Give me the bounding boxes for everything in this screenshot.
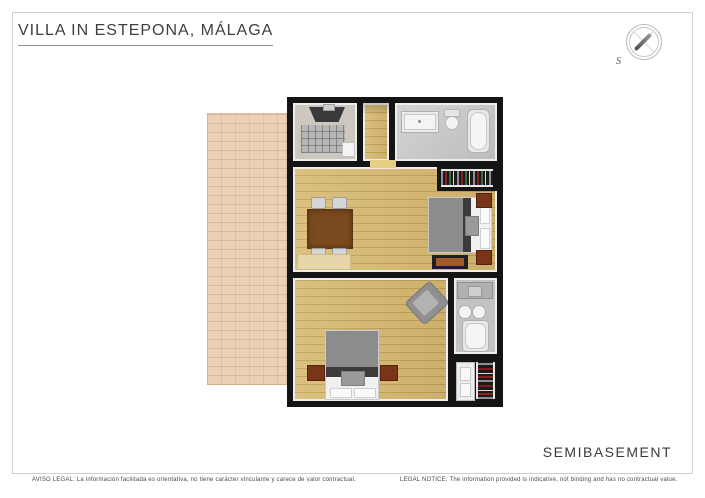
- dining-chair: [332, 197, 347, 209]
- shower-tray-icon: [401, 111, 439, 133]
- nightstand: [307, 365, 325, 381]
- nightstand: [476, 193, 492, 208]
- wardrobe-clothes: [441, 169, 493, 187]
- dining-table: [307, 209, 353, 249]
- bed-pillow: [330, 388, 352, 398]
- vanity-sink: [457, 282, 493, 299]
- cabinet-small: [342, 142, 355, 157]
- shower-drain: [418, 120, 421, 123]
- bed-blanket: [465, 216, 479, 236]
- room-utility: [293, 103, 357, 161]
- bed-duvet: [326, 331, 378, 367]
- nightstand: [476, 250, 492, 265]
- bathtub-icon: [467, 109, 490, 153]
- bathtub-inner: [470, 112, 487, 150]
- bathtub-inner: [465, 323, 486, 349]
- toilet-icon: [458, 305, 472, 319]
- floor-label: SEMIBASEMENT: [543, 444, 672, 460]
- bed-blanket: [341, 371, 365, 386]
- wardrobe-top: [437, 167, 497, 191]
- legal-notice-en: LEGAL NOTICE: The information provided i…: [400, 477, 677, 483]
- dining-chair: [311, 197, 326, 209]
- sink-basin: [468, 286, 482, 297]
- bench: [432, 255, 468, 269]
- legal-notice-es: AVISO LEGAL: La información facilitada e…: [32, 477, 356, 483]
- nightstand: [380, 365, 398, 381]
- compass-south-label: S: [616, 56, 621, 67]
- shelf-opening: [460, 367, 471, 381]
- shelf-opening: [460, 383, 471, 397]
- media-unit-top: [323, 104, 335, 111]
- bathtub-icon: [462, 320, 489, 352]
- terrace-paving: [207, 113, 287, 385]
- toilet-icon: [445, 116, 459, 130]
- bed-duvet: [429, 198, 463, 252]
- tiled-rug: [301, 125, 345, 153]
- bidet-icon: [472, 305, 486, 319]
- wardrobe-clothes: [476, 362, 495, 399]
- bed-pillow: [480, 228, 490, 249]
- sideboard: [297, 254, 351, 270]
- compass-icon: S: [626, 24, 664, 62]
- page-title: VILLA IN ESTEPONA, MÁLAGA: [18, 22, 273, 46]
- bench-cushion: [436, 258, 464, 266]
- armchair-seat: [412, 290, 439, 317]
- door-threshold: [370, 160, 396, 168]
- wardrobe-shelf: [456, 362, 475, 401]
- room-hallway: [363, 103, 389, 161]
- bed-double: [325, 330, 379, 400]
- floorplan-building: [287, 97, 503, 407]
- bed-pillow: [354, 388, 376, 398]
